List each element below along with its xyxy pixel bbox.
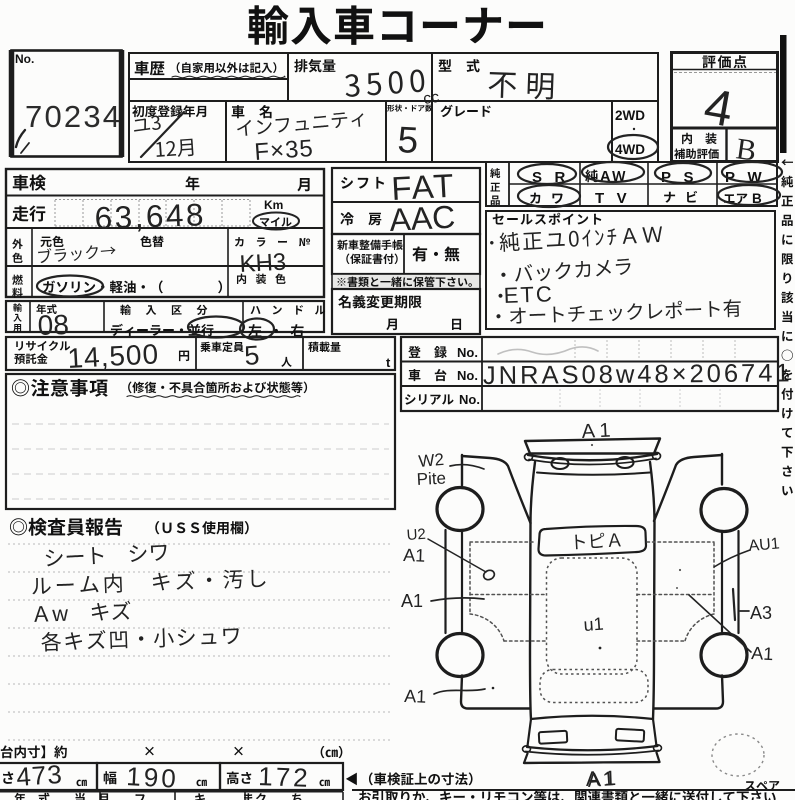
svg-text:No.: No. bbox=[459, 392, 480, 407]
svg-text:ETC: ETC bbox=[503, 281, 554, 308]
svg-text:AU1: AU1 bbox=[748, 535, 781, 555]
svg-text:A1: A1 bbox=[751, 643, 774, 664]
svg-text:14,500: 14,500 bbox=[67, 338, 160, 374]
svg-text:A1: A1 bbox=[587, 768, 617, 792]
svg-text:u1: u1 bbox=[583, 614, 604, 635]
svg-text:No.: No. bbox=[15, 52, 34, 66]
svg-text:A1: A1 bbox=[401, 591, 423, 611]
svg-text:JNRAS08w48×206741: JNRAS08w48×206741 bbox=[483, 359, 793, 390]
svg-text:T V: T V bbox=[595, 190, 627, 207]
svg-text:U2: U2 bbox=[406, 526, 426, 544]
svg-text:KH3: KH3 bbox=[239, 249, 287, 278]
svg-text:F×35: F×35 bbox=[254, 135, 315, 166]
svg-text:172: 172 bbox=[258, 761, 311, 793]
svg-text:473: 473 bbox=[15, 759, 63, 792]
svg-text:No.: No. bbox=[457, 368, 478, 383]
svg-text:2WD: 2WD bbox=[615, 108, 645, 123]
svg-text:5: 5 bbox=[243, 340, 260, 371]
svg-text:A3: A3 bbox=[750, 603, 772, 623]
svg-text:70234: 70234 bbox=[25, 99, 122, 134]
svg-text:A1: A1 bbox=[404, 686, 427, 707]
svg-text:t: t bbox=[386, 355, 391, 370]
svg-text:No.: No. bbox=[457, 345, 478, 360]
svg-text:Pite: Pite bbox=[416, 468, 446, 489]
svg-text:A1: A1 bbox=[403, 545, 426, 566]
svg-text:P W: P W bbox=[725, 169, 763, 186]
svg-text:AAC: AAC bbox=[388, 199, 456, 238]
svg-text:5: 5 bbox=[397, 119, 420, 161]
svg-text:190: 190 bbox=[126, 761, 180, 794]
svg-text:Km: Km bbox=[264, 198, 283, 212]
svg-text:4WD: 4WD bbox=[615, 142, 645, 157]
svg-text:63,648: 63,648 bbox=[94, 196, 207, 236]
